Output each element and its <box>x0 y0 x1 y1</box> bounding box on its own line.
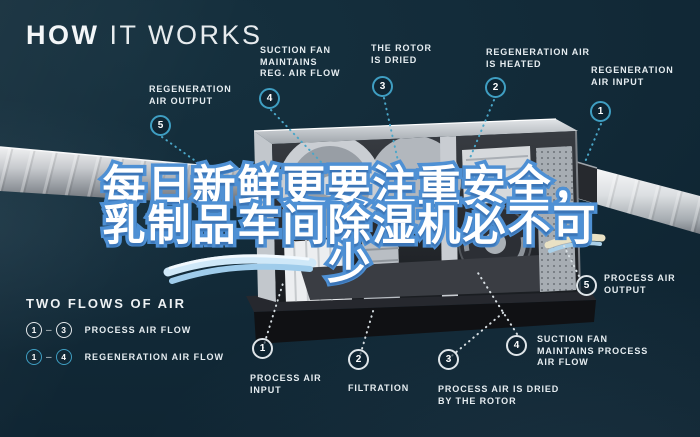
legend-title: TWO FLOWS OF AIR <box>26 296 224 311</box>
legend-label: REGENERATION AIR FLOW <box>85 352 225 362</box>
legend-two-flows: TWO FLOWS OF AIR 1 – 3 PROCESS AIR FLOW … <box>26 296 224 376</box>
title-bold: HOW <box>26 20 99 50</box>
title-light: IT WORKS <box>99 20 262 50</box>
callout-rotor-is-dried: THE ROTOR IS DRIED 3 <box>371 43 432 66</box>
legend-range-dash: – <box>46 325 52 336</box>
callout-label: REGENERATION AIR OUTPUT <box>149 84 232 107</box>
step-number-badge: 4 <box>506 335 527 356</box>
callout-suction-fan-reg: SUCTION FAN MAINTAINS REG. AIR FLOW 4 <box>260 45 340 80</box>
chinese-headline-overlay: 每日新鲜更要注重安全， 乳制品车间除湿机必不可 少 <box>30 168 670 285</box>
callout-label: PROCESS AIR INPUT <box>250 373 322 396</box>
legend-row-regeneration: 1 – 4 REGENERATION AIR FLOW <box>26 349 224 365</box>
callout-label: REGENERATION AIR INPUT <box>591 65 674 88</box>
step-number-badge: 3 <box>372 76 393 97</box>
legend-circle-from: 1 <box>26 322 42 338</box>
legend-circle-from: 1 <box>26 349 42 365</box>
legend-circle-to: 3 <box>56 322 72 338</box>
step-number-badge: 2 <box>348 349 369 370</box>
legend-range-dash: – <box>46 352 52 363</box>
callout-regeneration-air-output: REGENERATION AIR OUTPUT 5 <box>149 84 232 107</box>
callout-label: FILTRATION <box>348 383 409 395</box>
callout-label: SUCTION FAN MAINTAINS PROCESS AIR FLOW <box>537 334 648 369</box>
callout-filtration: FILTRATION 2 <box>348 383 409 395</box>
callout-label: REGENERATION AIR IS HEATED <box>486 47 590 70</box>
callout-process-air-dried: PROCESS AIR IS DRIED BY THE ROTOR 3 <box>438 384 559 407</box>
legend-row-process: 1 – 3 PROCESS AIR FLOW <box>26 322 224 338</box>
step-number-badge: 5 <box>150 115 171 136</box>
callout-process-air-input: PROCESS AIR INPUT 1 <box>250 373 322 396</box>
callout-suction-fan-process: SUCTION FAN MAINTAINS PROCESS AIR FLOW 4 <box>537 334 648 369</box>
callout-label: THE ROTOR IS DRIED <box>371 43 432 66</box>
headline-line-3: 少 <box>30 246 670 285</box>
callout-label: PROCESS AIR IS DRIED BY THE ROTOR <box>438 384 559 407</box>
step-number-badge: 2 <box>485 77 506 98</box>
legend-circle-to: 4 <box>56 349 72 365</box>
callout-label: SUCTION FAN MAINTAINS REG. AIR FLOW <box>260 45 340 80</box>
callout-regeneration-air-heated: REGENERATION AIR IS HEATED 2 <box>486 47 590 70</box>
legend-label: PROCESS AIR FLOW <box>85 325 192 335</box>
callout-regeneration-air-input: REGENERATION AIR INPUT 1 <box>591 65 674 88</box>
infographic-canvas: HOW IT WORKS REGENERATION AIR OUTPUT 5 S… <box>0 0 700 437</box>
step-number-badge: 1 <box>590 101 611 122</box>
step-number-badge: 3 <box>438 349 459 370</box>
step-number-badge: 4 <box>259 88 280 109</box>
page-title: HOW IT WORKS <box>26 20 263 51</box>
step-number-badge: 1 <box>252 338 273 359</box>
